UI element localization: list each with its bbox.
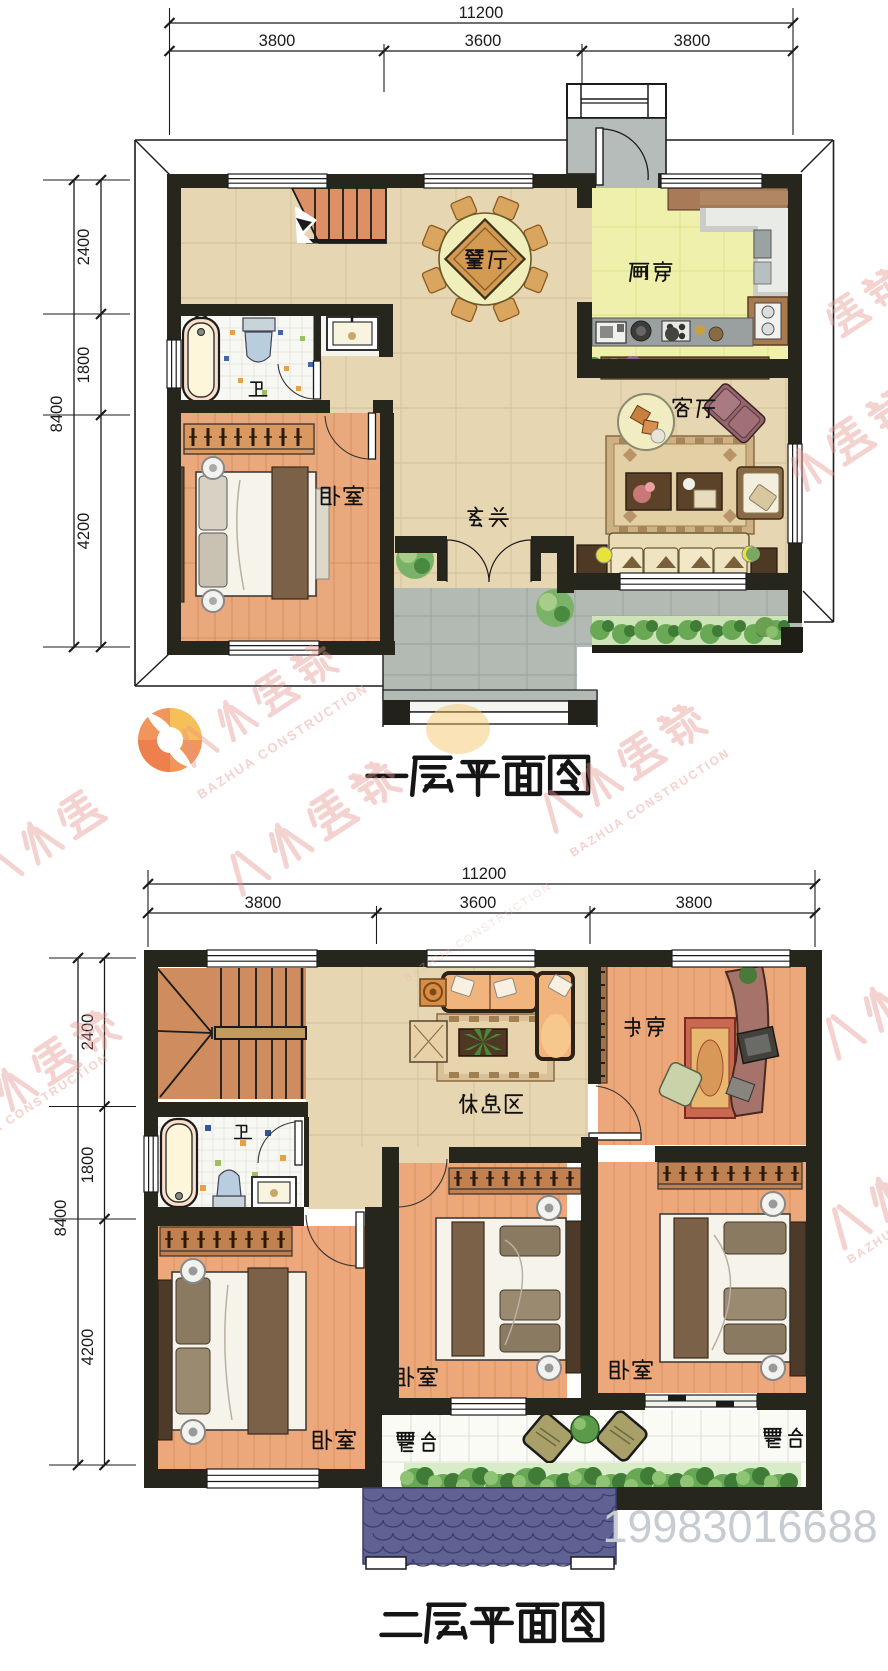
svg-text:1800: 1800 (75, 347, 93, 384)
svg-text:3800: 3800 (259, 32, 296, 50)
svg-text:11200: 11200 (459, 4, 504, 22)
svg-text:11200: 11200 (462, 865, 507, 883)
svg-text:3600: 3600 (465, 32, 502, 50)
svg-text:4200: 4200 (75, 513, 93, 550)
svg-text:BAZHUA CONSTRUCTION: BAZHUA CONSTRUCTION (194, 680, 371, 802)
svg-text:8400: 8400 (52, 1200, 70, 1237)
svg-text:BAZHUA CONSTRUCTION: BAZHUA CONSTRUCTION (567, 746, 732, 860)
svg-text:3800: 3800 (676, 894, 713, 912)
svg-text:1800: 1800 (79, 1147, 97, 1184)
svg-text:3800: 3800 (674, 32, 711, 50)
svg-text:3800: 3800 (245, 894, 282, 912)
svg-text:BAZHU: BAZHU (844, 1227, 888, 1267)
svg-text:2400: 2400 (75, 229, 93, 266)
svg-text:8400: 8400 (48, 396, 66, 433)
svg-text:19983016688: 19983016688 (602, 1501, 877, 1552)
svg-text:3600: 3600 (460, 894, 497, 912)
svg-text:4200: 4200 (79, 1329, 97, 1366)
